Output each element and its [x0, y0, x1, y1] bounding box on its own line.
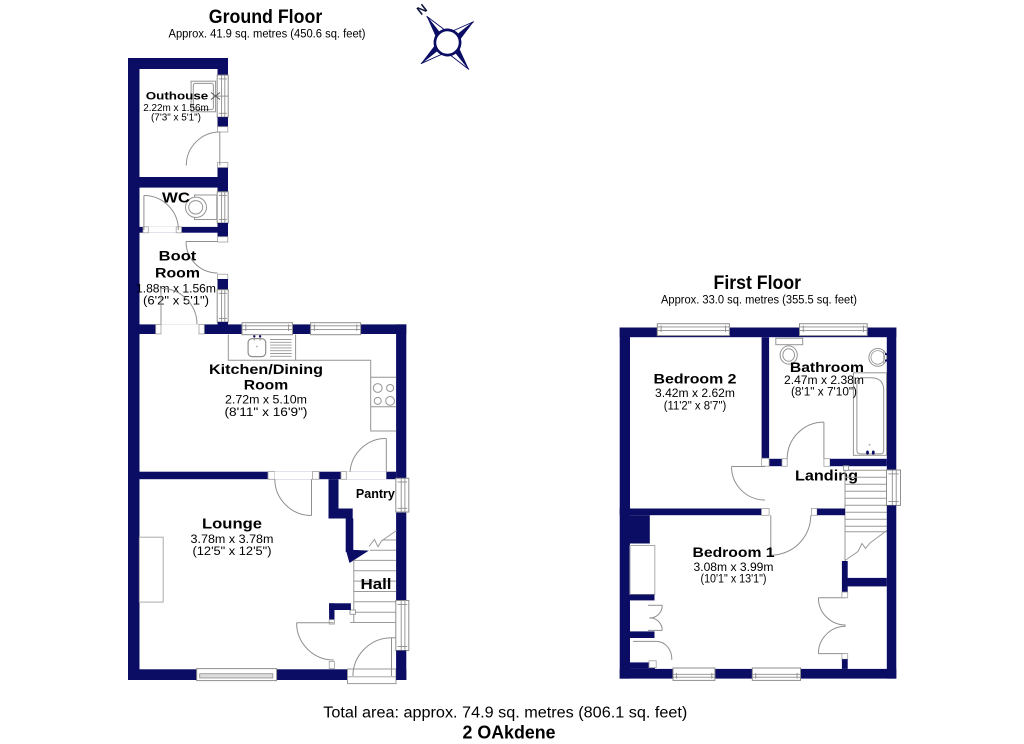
svg-text:Bedroom 1: Bedroom 1 [693, 544, 775, 560]
svg-text:Total area: approx. 74.9 sq. m: Total area: approx. 74.9 sq. metres (806… [323, 705, 687, 722]
svg-text:(7'3" x 5'1"): (7'3" x 5'1") [151, 113, 201, 124]
svg-text:(6'2" x 5'1"): (6'2" x 5'1") [143, 296, 209, 308]
svg-text:Boot: Boot [159, 249, 197, 264]
svg-text:Kitchen/Dining: Kitchen/Dining [209, 361, 323, 377]
svg-text:(10'1" x 13'1"): (10'1" x 13'1") [701, 574, 767, 586]
svg-text:Outhouse: Outhouse [146, 90, 209, 102]
svg-text:Hall: Hall [361, 577, 392, 593]
svg-text:Pantry: Pantry [356, 486, 396, 501]
svg-text:(11'2" x 8'7"): (11'2" x 8'7") [664, 401, 727, 413]
svg-text:Lounge: Lounge [202, 516, 262, 532]
svg-text:2.47m x 2.38m: 2.47m x 2.38m [784, 375, 864, 387]
svg-text:Landing: Landing [795, 469, 858, 485]
svg-text:1.88m x 1.56m: 1.88m x 1.56m [136, 284, 216, 296]
svg-text:(8'11" x 16'9"): (8'11" x 16'9") [225, 407, 308, 419]
svg-text:3.78m x 3.78m: 3.78m x 3.78m [191, 534, 274, 546]
svg-text:2.72m x 5.10m: 2.72m x 5.10m [225, 395, 307, 407]
svg-text:(8'1" x 7'10"): (8'1" x 7'10") [791, 387, 857, 399]
svg-text:(12'5" x 12'5"): (12'5" x 12'5") [193, 546, 272, 558]
svg-text:3.42m x 2.62m: 3.42m x 2.62m [655, 388, 735, 400]
svg-text:Ground Floor: Ground Floor [209, 7, 323, 28]
svg-text:Bedroom 2: Bedroom 2 [654, 370, 737, 386]
svg-text:Room: Room [244, 377, 289, 393]
svg-text:Room: Room [155, 266, 200, 281]
svg-text:2 OAkdene: 2 OAkdene [463, 722, 556, 742]
svg-text:Approx. 41.9 sq. metres (450.6: Approx. 41.9 sq. metres (450.6 sq. feet) [169, 28, 366, 40]
svg-text:First Floor: First Floor [714, 273, 802, 294]
svg-text:Approx. 33.0 sq. metres (355.5: Approx. 33.0 sq. metres (355.5 sq. feet) [661, 294, 857, 306]
svg-text:3.08m x 3.99m: 3.08m x 3.99m [694, 562, 774, 574]
svg-text:Bathroom: Bathroom [790, 359, 864, 375]
